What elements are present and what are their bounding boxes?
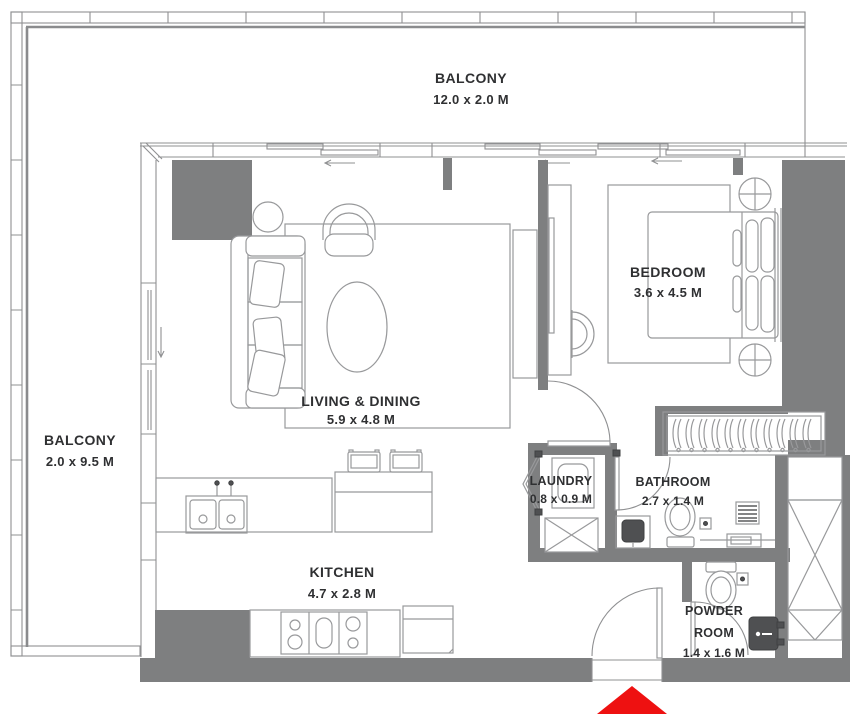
svg-text:2.0 x 9.5 M: 2.0 x 9.5 M [46, 454, 114, 469]
room-label-living-dining: LIVING & DINING 5.9 x 4.8 M [301, 393, 421, 427]
faucet [229, 481, 233, 485]
fridge [403, 606, 453, 653]
side-table [253, 202, 283, 232]
nightstand-lamp [739, 178, 771, 210]
right-wall [782, 160, 845, 412]
svg-text:12.0 x 2.0 M: 12.0 x 2.0 M [433, 92, 509, 107]
floor-plan-canvas: BALCONY 12.0 x 2.0 M BALCONY 2.0 x 9.5 M… [0, 0, 855, 718]
svg-text:1.4 x 1.6 M: 1.4 x 1.6 M [683, 646, 745, 660]
svg-text:BALCONY: BALCONY [435, 70, 507, 86]
room-label-balcony-left: BALCONY 2.0 x 9.5 M [44, 432, 116, 469]
svg-text:POWDER: POWDER [685, 604, 743, 618]
sliding-door-bedroom [598, 144, 740, 164]
living-bedroom-wall [538, 160, 548, 390]
bar-stool [348, 450, 380, 472]
svg-text:LAUNDRY: LAUNDRY [530, 474, 593, 488]
kitchen-island [335, 450, 432, 532]
tv-screen [549, 218, 554, 333]
window-wall-left [141, 143, 164, 657]
svg-text:KITCHEN: KITCHEN [309, 564, 374, 580]
pillow [761, 218, 774, 272]
duct-shaft [545, 518, 598, 552]
bed-cushion [733, 230, 741, 266]
pillow [761, 276, 774, 332]
svg-text:BALCONY: BALCONY [44, 432, 116, 448]
floor-drain [700, 518, 711, 529]
svg-text:5.9 x 4.8 M: 5.9 x 4.8 M [327, 412, 395, 427]
living-column [172, 160, 252, 240]
svg-text:LIVING & DINING: LIVING & DINING [301, 393, 421, 409]
armchair [323, 204, 375, 256]
svg-text:ROOM: ROOM [694, 626, 734, 640]
pillow [746, 220, 758, 272]
pillow [746, 276, 758, 330]
sofa-pillow [249, 260, 285, 308]
kitchen-lower-counter [250, 610, 400, 657]
svg-text:0.8 x 0.9 M: 0.8 x 0.9 M [530, 492, 592, 506]
tv-console [513, 230, 537, 378]
sofa [231, 236, 305, 408]
entrance-door [592, 588, 662, 682]
living-dining-room [231, 185, 571, 428]
vent-grille [736, 502, 759, 524]
svg-text:2.7 x 1.4 M: 2.7 x 1.4 M [642, 494, 704, 508]
room-labels: BALCONY 12.0 x 2.0 M BALCONY 2.0 x 9.5 M… [44, 70, 745, 660]
faucet [215, 481, 219, 485]
room-label-kitchen: KITCHEN 4.7 x 2.8 M [308, 564, 376, 601]
toilet [706, 562, 736, 609]
bar-stool [390, 450, 422, 472]
bedroom-door [548, 381, 610, 446]
room-label-balcony-top: BALCONY 12.0 x 2.0 M [433, 70, 509, 107]
sliding-door-balcony-arrow [158, 327, 164, 357]
reading-chair [572, 310, 594, 358]
sliding-door-living-1 [267, 144, 378, 166]
bed-cushion [733, 276, 741, 312]
floor-plan: BALCONY 12.0 x 2.0 M BALCONY 2.0 x 9.5 M… [0, 0, 855, 718]
svg-text:4.7 x 2.8 M: 4.7 x 2.8 M [308, 586, 376, 601]
svg-text:BATHROOM: BATHROOM [635, 475, 710, 489]
room-label-bathroom: BATHROOM 2.7 x 1.4 M [635, 475, 710, 508]
bedroom [548, 178, 781, 446]
svg-text:BEDROOM: BEDROOM [630, 264, 706, 280]
floor-drain [737, 573, 748, 585]
svg-text:3.6 x 4.5 M: 3.6 x 4.5 M [634, 285, 702, 300]
bottom-wall [140, 658, 592, 682]
entry-arrow-icon [597, 686, 667, 714]
coffee-table [327, 282, 387, 372]
wash-basin [616, 516, 650, 548]
service-shaft [788, 457, 842, 640]
nightstand-lamp [739, 344, 771, 376]
